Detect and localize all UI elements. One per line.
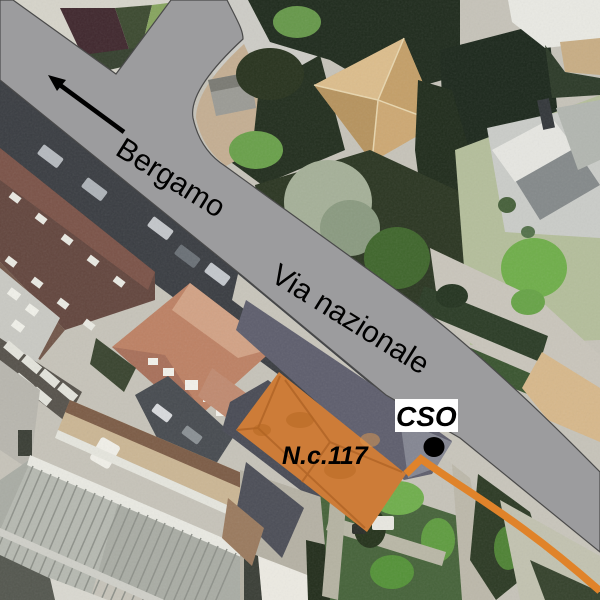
svg-text:CSO: CSO xyxy=(396,401,457,432)
svg-text:N.c.117: N.c.117 xyxy=(282,442,369,470)
